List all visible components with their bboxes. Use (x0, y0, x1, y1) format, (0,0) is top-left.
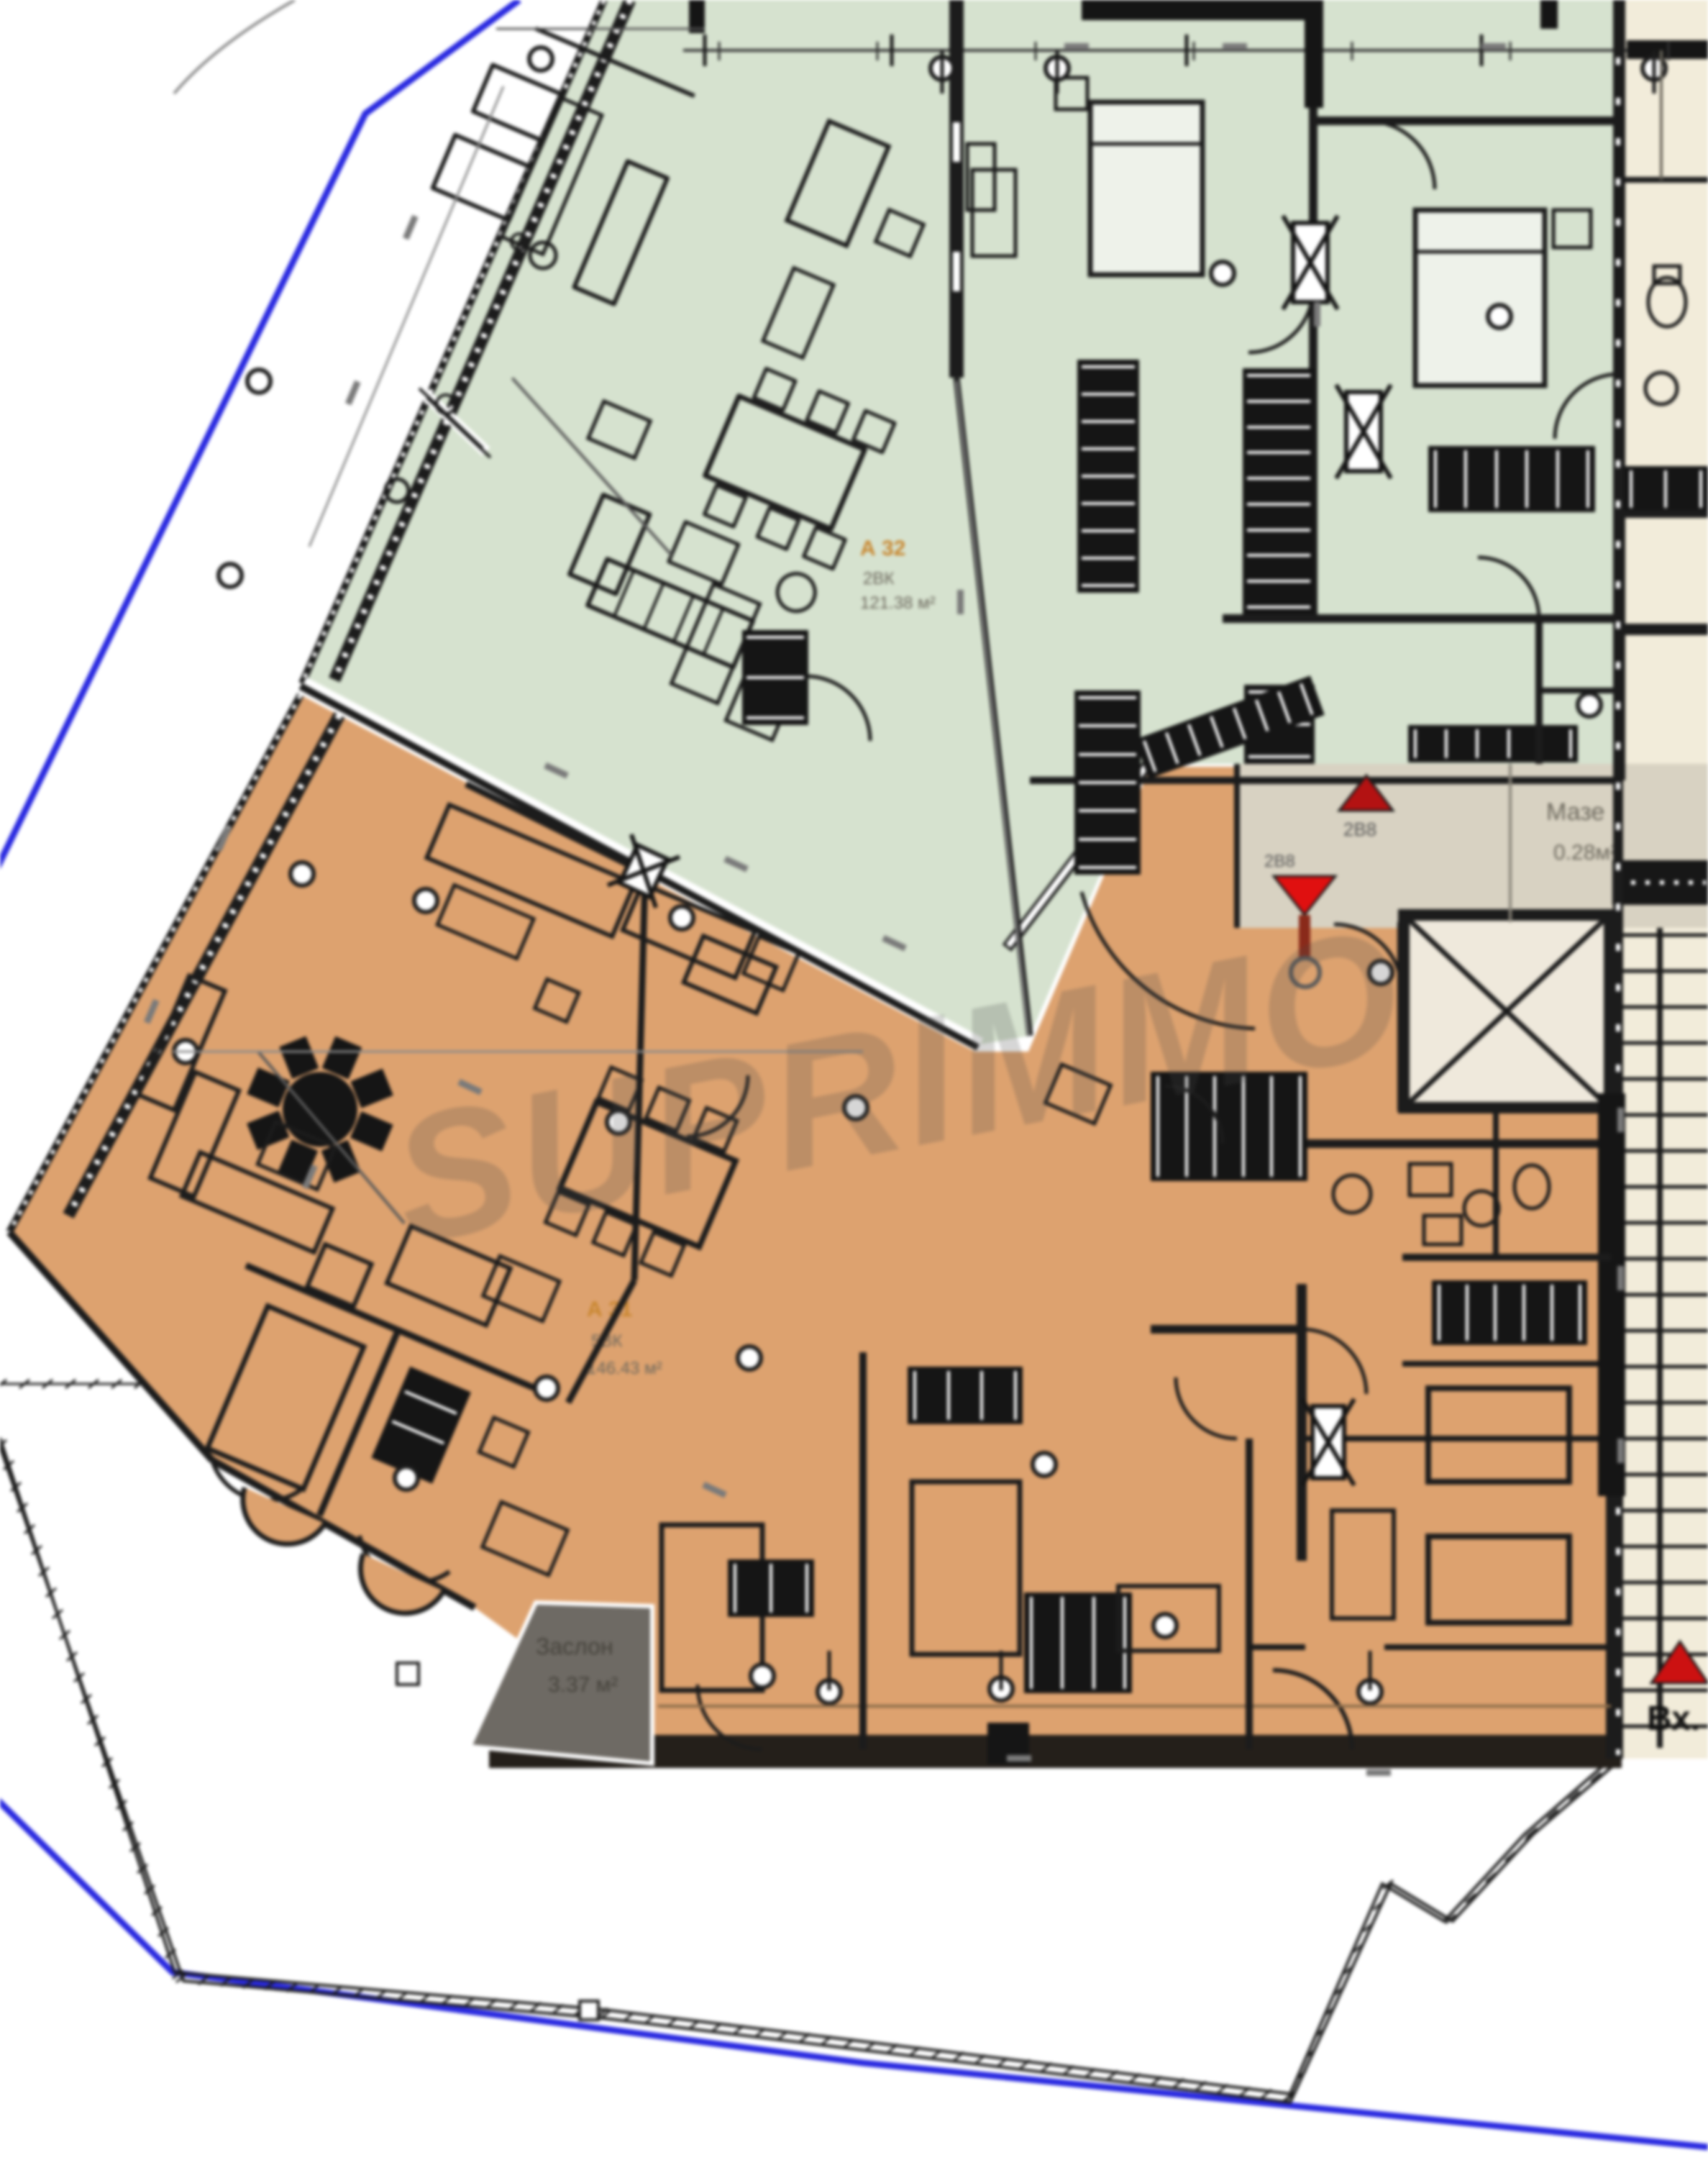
svg-text:Заслон: Заслон (536, 1633, 613, 1659)
svg-text:146.43 м²: 146.43 м² (587, 1359, 662, 1378)
svg-text:Вх.: Вх. (1647, 1700, 1700, 1738)
svg-text:3.37 м²: 3.37 м² (548, 1673, 618, 1697)
svg-text:2В8: 2В8 (1343, 819, 1376, 840)
svg-text:0.28м²: 0.28м² (1553, 841, 1617, 865)
svg-text:121.38 м²: 121.38 м² (860, 593, 936, 613)
svg-text:2ВК: 2ВК (863, 569, 894, 588)
svg-text:2В8: 2В8 (1264, 852, 1295, 871)
svg-text:Мазе: Мазе (1546, 798, 1604, 826)
svg-text:А 32: А 32 (860, 537, 905, 560)
